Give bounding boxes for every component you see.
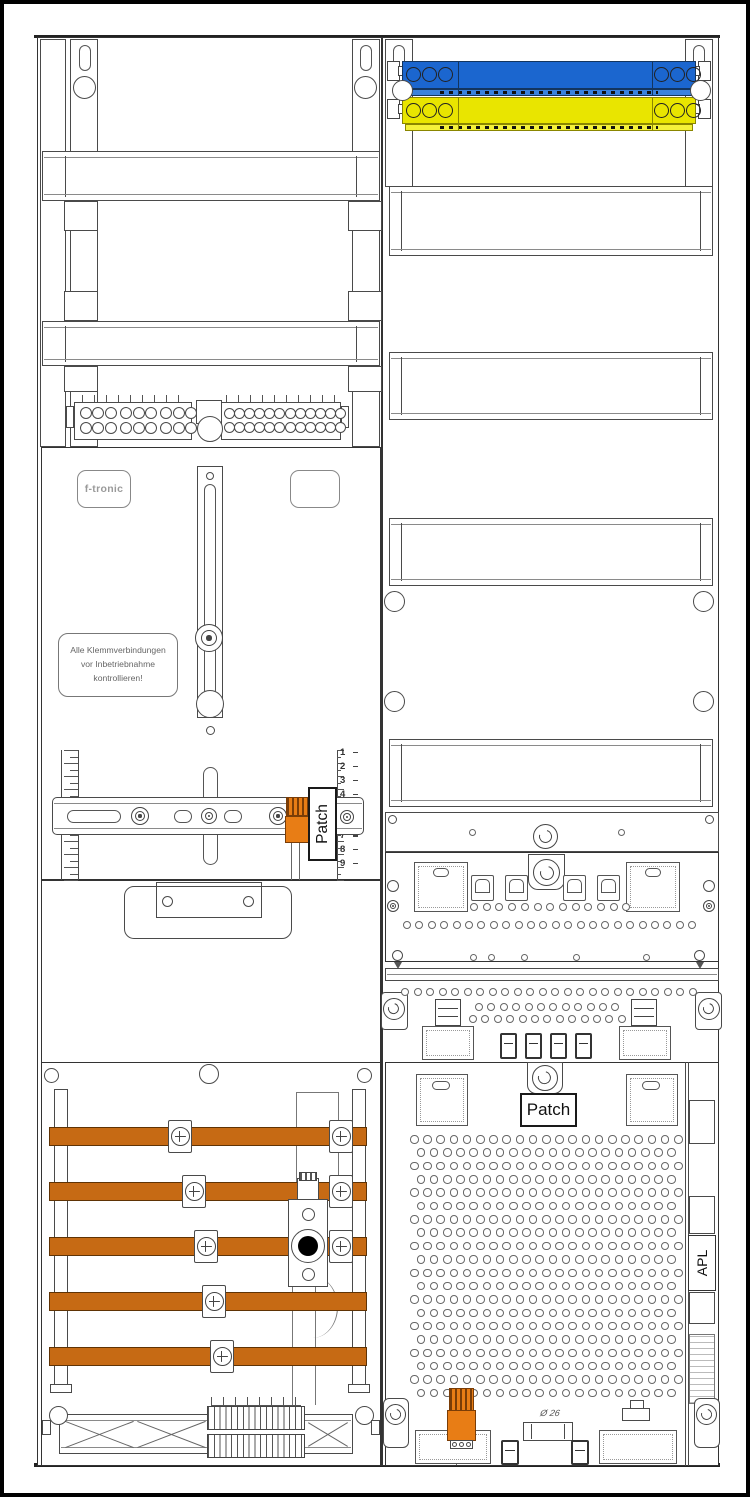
twist-lock[interactable] — [533, 824, 558, 849]
anchor-screw — [392, 950, 403, 961]
din-rail — [42, 321, 380, 366]
crossbar-end-screw — [340, 810, 354, 824]
apl-strip-ribbed — [689, 1334, 715, 1404]
wire — [292, 1287, 293, 1405]
handle-hole — [243, 896, 254, 907]
rail-clamp — [631, 999, 657, 1026]
patch-label-right-text: Patch — [527, 1100, 570, 1120]
orange-terminal-cap — [449, 1388, 474, 1411]
side-hole — [384, 691, 405, 712]
clamp-wire — [299, 843, 300, 880]
window-slot — [432, 1081, 450, 1090]
truss-x — [306, 1420, 350, 1448]
rail-foot — [64, 201, 98, 231]
terminal-end-cap — [66, 406, 74, 428]
warning-text: Alle Klemmverbindungen vor Inbetriebnahm… — [59, 644, 177, 685]
neutral-busbar-dashes — [440, 91, 658, 94]
electrical-cabinet-drawing: f-tronic Alle Klemmverbindungen vor Inbe… — [0, 0, 750, 1497]
corner-scallop — [357, 1068, 372, 1083]
twist-lock[interactable] — [383, 998, 405, 1020]
rail-hole — [392, 80, 413, 101]
orange-clamp-body — [285, 816, 309, 843]
din-rail — [42, 151, 380, 201]
busbar-upright — [54, 1089, 68, 1389]
rail-hole — [354, 76, 377, 99]
twist-lock[interactable] — [698, 998, 720, 1020]
slide-bar-hole — [206, 472, 214, 480]
busbar-end-separator — [458, 61, 459, 95]
blank-badge — [290, 470, 340, 508]
busbar-bracket — [698, 99, 711, 119]
patch-label-right: Patch — [520, 1093, 577, 1127]
rail-foot — [64, 291, 98, 321]
brand-badge: f-tronic — [77, 470, 131, 508]
patch-label-left: Patch — [308, 787, 337, 861]
strip-end-hole — [388, 815, 397, 824]
side-hole — [384, 591, 405, 612]
slide-bar-slot — [204, 484, 216, 696]
rail-foot — [64, 366, 98, 392]
truss-end-clip — [42, 1420, 51, 1435]
handle-outer — [124, 886, 292, 939]
twist-lock[interactable] — [385, 1404, 406, 1425]
twist-lock[interactable] — [696, 1404, 717, 1425]
cover-window — [599, 1430, 677, 1464]
strip-end-hole — [705, 815, 714, 824]
terminal-end-cap — [341, 406, 349, 428]
corner-scallop — [44, 1068, 59, 1083]
din-rail — [389, 186, 713, 256]
truss-x — [64, 1420, 134, 1448]
terminal-base-hole — [452, 1442, 457, 1447]
slide-bar-small-hole — [206, 726, 215, 735]
crossbar-slot — [224, 810, 242, 823]
din-rail — [389, 518, 713, 586]
side-hole — [693, 591, 714, 612]
apl-strip-segment — [689, 1292, 715, 1324]
rail-hole — [690, 80, 711, 101]
upright-foot — [348, 1384, 370, 1393]
block-hole — [302, 1208, 315, 1221]
twist-lock[interactable] — [532, 1065, 558, 1091]
crossbar-screw — [131, 807, 149, 825]
busbar-bracket — [387, 61, 400, 81]
apl-strip-segment — [689, 1196, 715, 1234]
terminal-block-left — [74, 402, 192, 440]
cover-window — [619, 1026, 671, 1060]
busbar-upright — [352, 1089, 366, 1389]
window-slot — [645, 868, 661, 877]
side-screw-hole — [703, 880, 715, 892]
rail-hole — [73, 76, 96, 99]
busbar-bracket — [698, 61, 711, 81]
truss-end-clip — [371, 1420, 380, 1435]
slide-bar-end-hole — [196, 690, 224, 718]
cable-entry-hole — [298, 1236, 318, 1256]
terminal-base-hole — [459, 1442, 464, 1447]
window-slot — [433, 868, 449, 877]
terminal-base-hole — [466, 1442, 471, 1447]
compartment-top-hole — [199, 1064, 219, 1084]
truss-x — [136, 1420, 206, 1448]
rail-foot — [348, 291, 382, 321]
warning-label: Alle Klemmverbindungen vor Inbetriebnahm… — [58, 633, 178, 697]
anchor-screw — [694, 950, 705, 961]
divider-band — [385, 968, 719, 981]
apl-label-box: APL — [688, 1235, 716, 1291]
crossbar-slot — [67, 810, 121, 823]
crossbar-screw — [201, 808, 217, 824]
din-rail — [389, 352, 713, 420]
cover-window — [422, 1026, 474, 1060]
side-screw — [703, 900, 715, 912]
slide-bar-screw — [195, 624, 223, 652]
busbar-end-separator — [458, 97, 459, 131]
rail-slot — [79, 45, 91, 71]
handle-hole — [162, 896, 173, 907]
side-screw — [387, 900, 399, 912]
orange-clamp-cap — [286, 797, 308, 816]
rail-foot — [348, 366, 382, 392]
busbar-end-separator — [652, 97, 653, 131]
brand-label: f-tronic — [85, 483, 124, 495]
rail-clamp — [435, 999, 461, 1026]
apl-strip-segment — [689, 1100, 715, 1144]
side-hole — [693, 691, 714, 712]
din-rail — [389, 739, 713, 807]
left-outer-strip — [40, 39, 66, 447]
patch-label-left-text: Patch — [314, 804, 332, 844]
orange-terminal-body — [447, 1410, 476, 1441]
upright-foot — [50, 1384, 72, 1393]
truss-corner-hole — [49, 1406, 68, 1425]
main-block-clamp-cap — [299, 1172, 317, 1181]
rail-foot — [348, 201, 382, 231]
apl-strip-line — [685, 1062, 686, 1466]
window-slot — [642, 1081, 660, 1090]
terminal-mid-hole — [197, 416, 223, 442]
crossbar-slot — [174, 810, 192, 823]
pe-busbar-dashes — [440, 126, 658, 129]
diameter-label: Ø 26 — [529, 1408, 571, 1418]
twist-lock[interactable] — [533, 859, 560, 886]
terminal-block-right — [221, 402, 341, 440]
busbar-bracket — [387, 99, 400, 119]
block-hole — [302, 1268, 315, 1281]
cable-gland-bracket — [523, 1422, 573, 1441]
busbar-end-separator — [652, 61, 653, 95]
apl-label-text: APL — [694, 1250, 710, 1276]
rail-slot — [360, 45, 372, 71]
clamp-wire — [291, 843, 292, 880]
small-bracket — [622, 1408, 650, 1421]
side-screw-hole — [387, 880, 399, 892]
